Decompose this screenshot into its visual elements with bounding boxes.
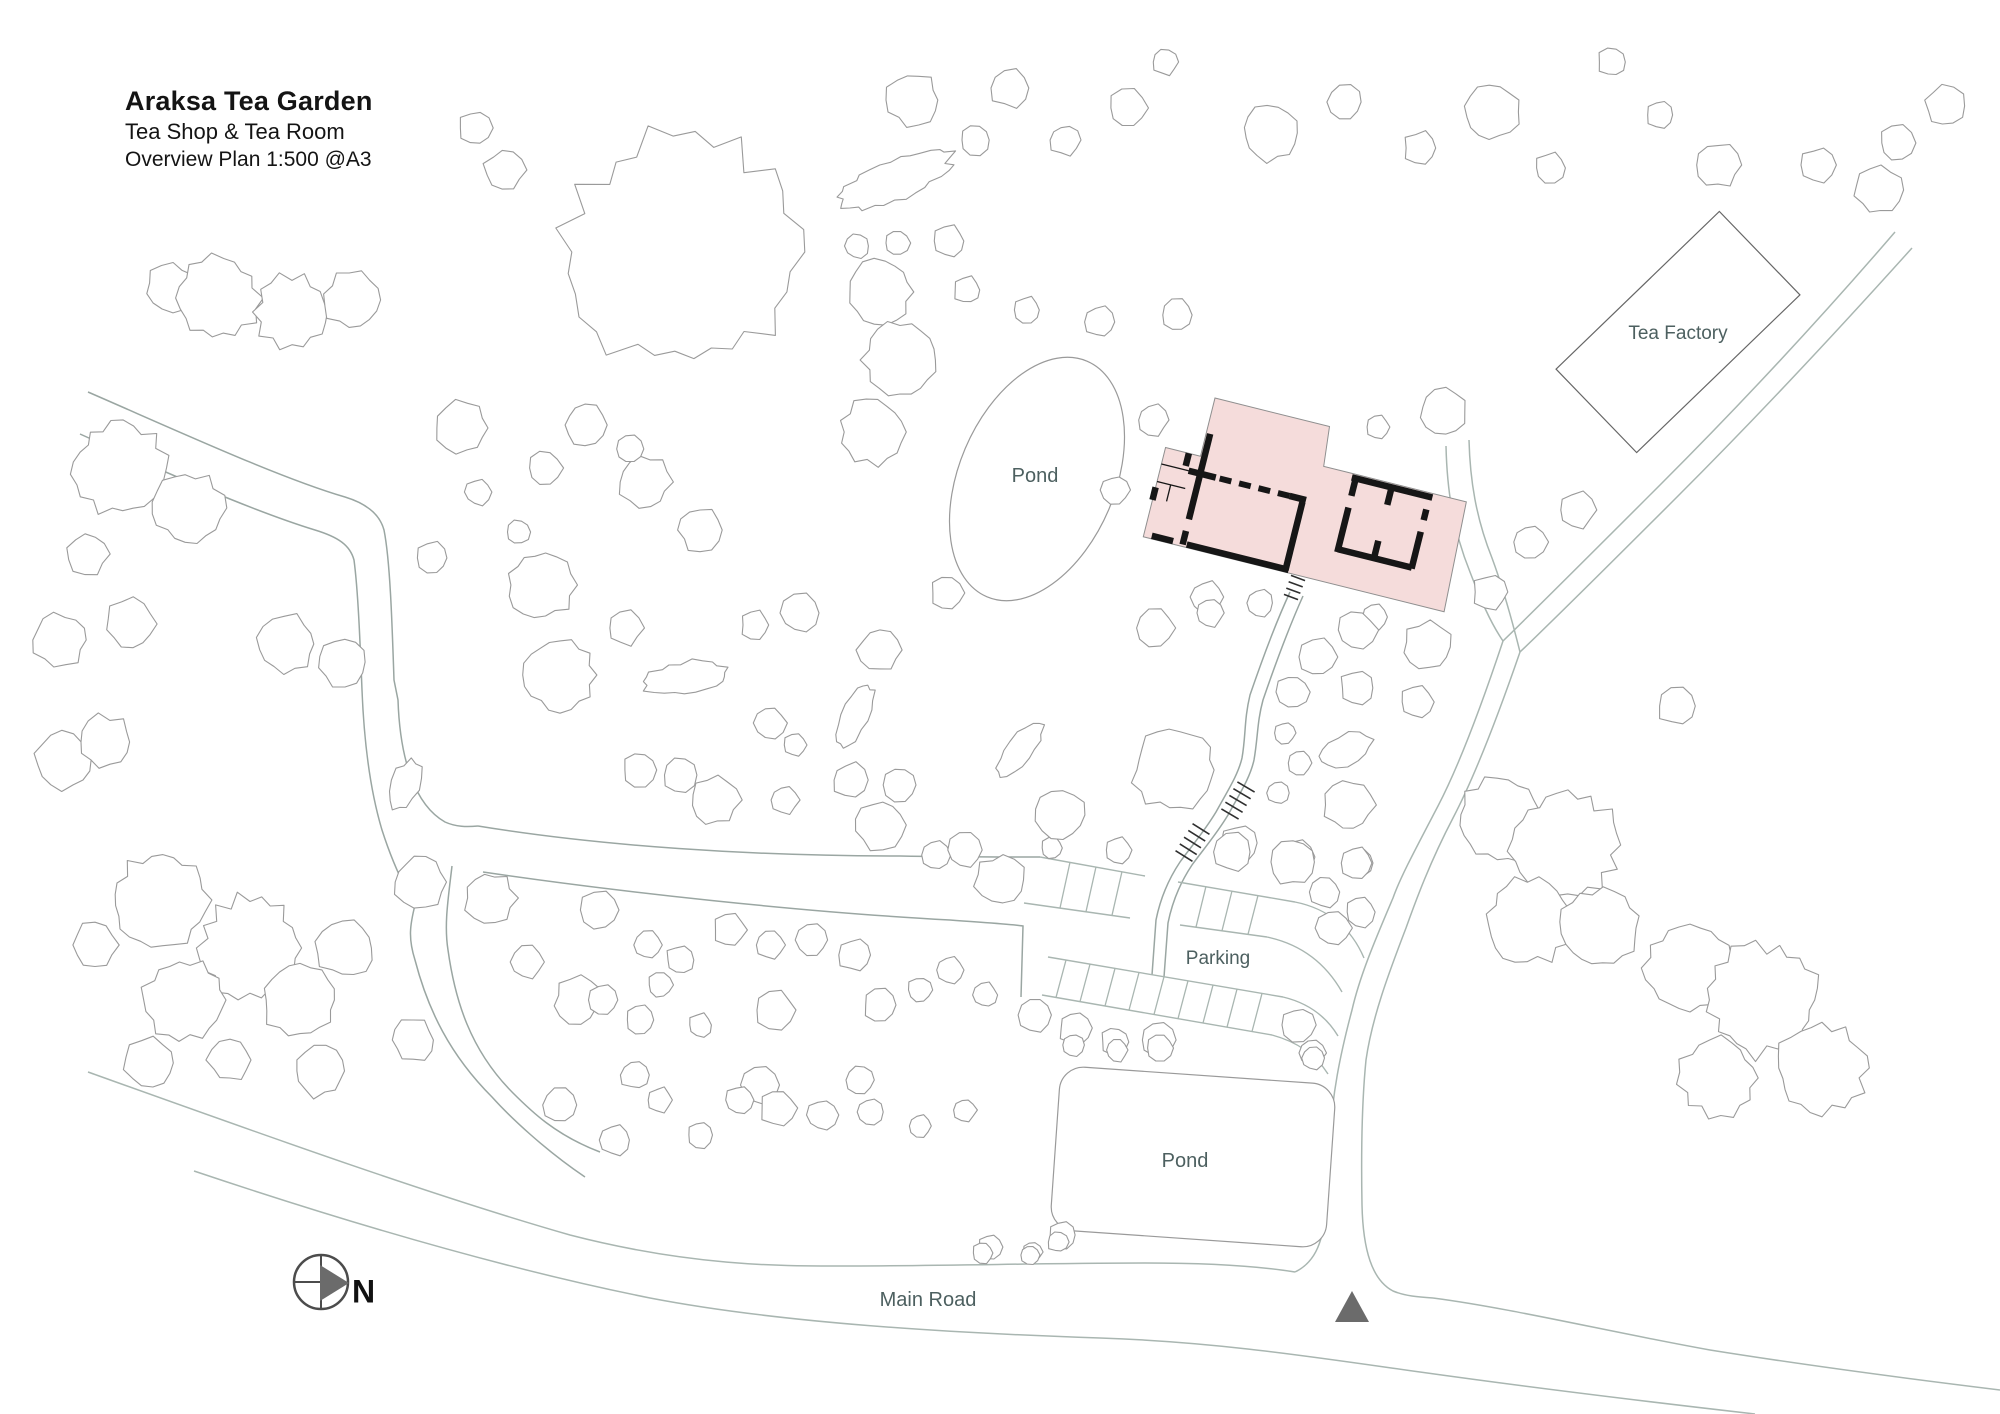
tree-canopy xyxy=(678,509,723,551)
tree-canopy xyxy=(1561,491,1597,529)
tea-factory-label: Tea Factory xyxy=(1628,323,1728,344)
steps-hatch xyxy=(1286,588,1300,593)
parking-stall-divider xyxy=(1060,862,1070,908)
parking-label: Parking xyxy=(1186,948,1250,969)
tree-canopy xyxy=(886,232,911,255)
tree-canopy xyxy=(73,922,119,966)
tree-canopy xyxy=(297,1045,345,1099)
tree-canopy xyxy=(1778,1022,1869,1117)
tree-canopy xyxy=(795,924,827,956)
tree-canopy xyxy=(599,1125,629,1156)
tree-canopy xyxy=(841,399,907,467)
building-wall xyxy=(1186,453,1189,466)
trees-layer xyxy=(33,48,1965,1264)
building-wall xyxy=(1374,541,1379,559)
tree-canopy xyxy=(1139,404,1169,436)
entrance-marker-icon xyxy=(1335,1291,1369,1322)
parking-stall-divider xyxy=(1086,867,1096,912)
tree-canopy xyxy=(1474,576,1507,611)
tree-canopy xyxy=(689,1123,713,1149)
tree-canopy xyxy=(1163,299,1192,330)
tree-canopy xyxy=(1327,85,1361,119)
tree-canopy xyxy=(625,754,657,787)
tree-canopy xyxy=(762,1092,798,1126)
parking-stall-divider xyxy=(1105,968,1115,1006)
tree-canopy xyxy=(649,973,673,997)
tree-canopy xyxy=(1282,1010,1316,1043)
tree-canopy xyxy=(617,435,644,461)
tree-canopy xyxy=(1197,600,1224,628)
parking-edge xyxy=(1040,857,1145,876)
tree-canopy xyxy=(934,225,964,257)
tree-canopy xyxy=(933,577,965,608)
tree-canopy xyxy=(1137,609,1176,647)
tree-canopy xyxy=(319,639,366,687)
tree-canopy xyxy=(1111,89,1149,126)
tree-canopy xyxy=(850,258,914,325)
tree-canopy xyxy=(643,659,728,694)
tree-canopy xyxy=(634,931,663,958)
tree-canopy xyxy=(757,990,796,1030)
parking-stall-divider xyxy=(1196,886,1206,927)
tree-canopy xyxy=(67,534,110,575)
tree-canopy xyxy=(580,891,619,929)
entrance-marker xyxy=(1335,1291,1369,1322)
tree-canopy xyxy=(483,150,527,189)
tree-canopy xyxy=(756,931,785,959)
tree-canopy xyxy=(1660,687,1696,724)
building-wall xyxy=(1183,531,1186,545)
tree-canopy xyxy=(937,957,964,984)
tree-canopy xyxy=(1275,723,1296,744)
steps-hatch xyxy=(1180,844,1197,855)
tree-canopy xyxy=(1405,131,1436,165)
tree-canopy xyxy=(922,841,951,869)
tree-canopy xyxy=(973,982,998,1006)
steps-hatch xyxy=(1289,582,1303,587)
tree-canopy xyxy=(509,553,578,618)
tree-canopy xyxy=(955,276,980,302)
tree-canopy xyxy=(1063,1035,1085,1056)
tree-canopy xyxy=(1319,732,1374,769)
tree-canopy xyxy=(1106,837,1132,864)
tree-canopy xyxy=(315,920,372,975)
tree-canopy xyxy=(256,614,313,675)
steps-hatch xyxy=(1176,851,1193,862)
tree-canopy xyxy=(860,322,936,396)
parking-stall-divider xyxy=(1222,891,1232,931)
tree-canopy xyxy=(837,150,956,211)
tree-canopy xyxy=(1882,125,1916,160)
tree-canopy xyxy=(33,612,86,667)
building-drive-east xyxy=(1469,440,1520,652)
tree-canopy xyxy=(530,451,564,484)
tree-canopy xyxy=(648,1087,672,1113)
tree-canopy xyxy=(627,1005,653,1034)
pond-lower-label: Pond xyxy=(1162,1150,1209,1172)
tree-canopy xyxy=(1131,729,1214,809)
tree-canopy xyxy=(690,1013,712,1038)
tree-canopy xyxy=(395,856,447,908)
tree-canopy xyxy=(857,1099,883,1125)
tree-canopy xyxy=(845,234,869,259)
parking-edge xyxy=(1267,937,1342,992)
building-wall xyxy=(1290,496,1306,500)
tree-canopy xyxy=(107,597,157,648)
tree-canopy xyxy=(1402,686,1434,718)
tree-canopy xyxy=(1299,638,1338,674)
tree-canopy xyxy=(846,1066,874,1094)
tree-canopy xyxy=(1035,791,1085,840)
tree-canopy xyxy=(390,758,423,810)
tree-canopy xyxy=(1324,781,1376,829)
north-compass: N xyxy=(294,1255,375,1309)
tree-canopy xyxy=(865,988,896,1021)
tree-canopy xyxy=(1309,878,1339,908)
tree-canopy xyxy=(715,913,747,945)
tree-canopy xyxy=(176,253,264,337)
north-letter: N xyxy=(352,1273,375,1309)
tree-canopy xyxy=(1276,678,1310,707)
tree-canopy xyxy=(1404,620,1451,669)
tree-canopy xyxy=(1347,897,1375,928)
tree-canopy xyxy=(556,126,805,359)
site-plan-drawing: PondPondParkingMain RoadTea FactoryN xyxy=(0,0,2000,1414)
tree-canopy xyxy=(152,475,227,544)
tree-canopy xyxy=(665,758,697,792)
plan-subtitle: Tea Shop & Tea Room xyxy=(125,118,373,146)
tree-canopy xyxy=(1247,589,1273,617)
parking-stall-divider xyxy=(1178,981,1188,1019)
tree-canopy xyxy=(508,520,531,543)
tree-canopy xyxy=(839,939,871,971)
tree-canopy xyxy=(948,833,982,868)
tree-canopy xyxy=(1599,48,1625,74)
tree-canopy xyxy=(1315,912,1352,945)
parking-stall-divider xyxy=(1080,964,1090,1001)
tree-canopy xyxy=(1018,1000,1051,1033)
tree-canopy xyxy=(253,273,328,350)
tree-canopy xyxy=(1214,832,1250,871)
main-road-top-right xyxy=(1433,1298,2000,1390)
tree-canopy xyxy=(996,723,1045,777)
junction-flare-right xyxy=(1362,1205,1433,1298)
tree-canopy xyxy=(123,1036,173,1087)
tree-canopy xyxy=(1801,148,1836,183)
tree-canopy xyxy=(1341,671,1373,704)
tree-canopy xyxy=(1464,85,1519,139)
tree-canopy xyxy=(753,708,787,739)
tree-canopy xyxy=(392,1020,433,1060)
tree-canopy xyxy=(1244,105,1297,163)
building-wall xyxy=(1351,478,1355,495)
building-wall xyxy=(1387,487,1391,504)
tree-canopy xyxy=(962,126,989,156)
tree-canopy xyxy=(954,1100,978,1122)
tree-canopy xyxy=(465,874,519,923)
parking-stall-divider xyxy=(1129,972,1139,1010)
tree-canopy xyxy=(742,610,769,639)
parking-stall-divider xyxy=(1252,993,1262,1031)
tree-canopy xyxy=(437,399,488,454)
parking-stall-divider xyxy=(1227,989,1237,1027)
site-plan-page: PondPondParkingMain RoadTea FactoryN Ara… xyxy=(0,0,2000,1414)
pond-upper-label: Pond xyxy=(1012,465,1059,487)
tree-canopy xyxy=(1021,1247,1040,1265)
tree-canopy xyxy=(667,946,694,972)
plan-title: Araksa Tea Garden xyxy=(125,84,373,118)
tree-canopy xyxy=(1648,102,1673,129)
parking-stall-divider xyxy=(1056,960,1066,997)
tree-canopy xyxy=(1271,841,1314,884)
tree-canopy xyxy=(1085,306,1115,336)
tree-canopy xyxy=(693,775,743,824)
tree-canopy xyxy=(565,404,607,446)
main-road-label: Main Road xyxy=(880,1289,977,1311)
parking-stall-divider xyxy=(1248,895,1258,934)
plan-scale-note: Overview Plan 1:500 @A3 xyxy=(125,146,373,173)
tree-canopy xyxy=(1854,165,1904,212)
tree-canopy xyxy=(620,1062,649,1088)
tree-canopy xyxy=(589,985,618,1015)
tree-canopy xyxy=(771,787,800,815)
tree-canopy xyxy=(1288,751,1312,775)
parking-edge xyxy=(1178,882,1295,902)
tree-canopy xyxy=(1367,415,1390,439)
tree-canopy xyxy=(1153,49,1178,75)
tree-canopy xyxy=(464,479,492,506)
tree-canopy xyxy=(780,593,819,632)
tree-canopy xyxy=(115,855,212,948)
tree-canopy xyxy=(909,979,933,1002)
tree-canopy xyxy=(1537,152,1566,183)
west-trail-sw-branch-west xyxy=(410,905,585,1177)
tree-canopy xyxy=(1514,526,1549,558)
tree-canopy xyxy=(1925,84,1965,124)
tree-canopy xyxy=(619,456,673,509)
tree-canopy xyxy=(991,69,1029,109)
tree-canopy xyxy=(883,769,916,802)
tree-canopy xyxy=(543,1088,577,1121)
tree-canopy xyxy=(1050,126,1081,156)
tree-canopy xyxy=(1697,145,1742,187)
title-block: Araksa Tea Garden Tea Shop & Tea Room Ov… xyxy=(125,84,373,173)
tree-canopy xyxy=(1420,387,1465,434)
tree-canopy xyxy=(836,685,875,748)
tree-canopy xyxy=(206,1039,251,1079)
parking-stall-divider xyxy=(1154,977,1164,1015)
parking-stall-divider xyxy=(1112,871,1122,915)
tree-canopy xyxy=(856,802,907,851)
parking-stall-divider xyxy=(1203,985,1213,1023)
building-wall xyxy=(1424,509,1427,520)
tree-canopy xyxy=(610,610,645,647)
tree-canopy xyxy=(1042,837,1062,859)
building-wall xyxy=(1152,487,1155,500)
tree-canopy xyxy=(886,76,938,128)
tree-canopy xyxy=(856,630,902,669)
tree-canopy xyxy=(1560,887,1639,964)
tree-canopy xyxy=(460,112,493,143)
tree-canopy xyxy=(909,1115,931,1138)
tree-canopy xyxy=(1267,782,1290,803)
tree-canopy xyxy=(417,541,447,573)
tree-canopy xyxy=(974,855,1025,903)
tree-canopy xyxy=(784,734,807,756)
tree-canopy xyxy=(1014,296,1039,323)
tree-canopy xyxy=(834,762,868,797)
tree-canopy xyxy=(324,271,381,328)
tree-canopy xyxy=(807,1101,839,1130)
tree-canopy xyxy=(510,945,544,979)
tree-canopy xyxy=(523,640,597,714)
